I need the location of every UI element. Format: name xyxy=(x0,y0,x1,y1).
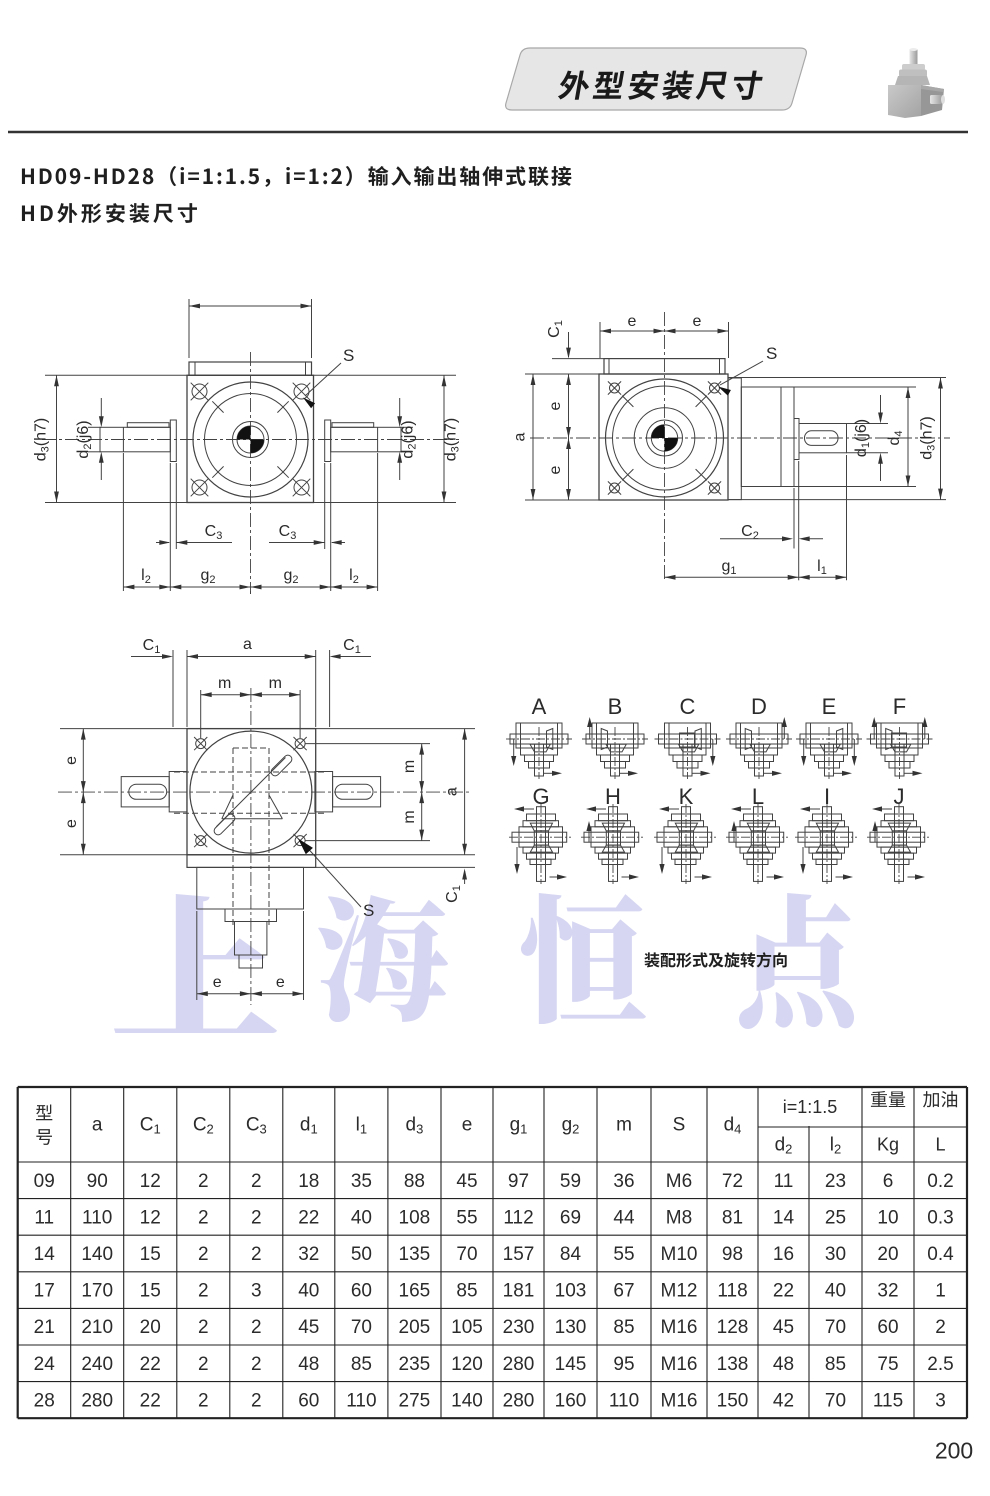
svg-text:2: 2 xyxy=(251,1207,262,1228)
svg-text:157: 157 xyxy=(503,1244,535,1265)
svg-text:85: 85 xyxy=(456,1281,477,1302)
svg-text:72: 72 xyxy=(722,1171,743,1192)
svg-text:a: a xyxy=(243,636,252,653)
svg-text:24: 24 xyxy=(34,1354,56,1375)
svg-text:L: L xyxy=(935,1135,945,1155)
svg-text:a: a xyxy=(512,432,529,441)
svg-text:150: 150 xyxy=(717,1390,749,1411)
svg-text:45: 45 xyxy=(773,1317,794,1338)
svg-text:18: 18 xyxy=(298,1171,319,1192)
svg-text:140: 140 xyxy=(451,1390,483,1411)
svg-text:28: 28 xyxy=(34,1390,55,1411)
svg-text:170: 170 xyxy=(81,1281,113,1302)
svg-text:m: m xyxy=(401,760,418,773)
svg-text:85: 85 xyxy=(351,1354,372,1375)
svg-text:3: 3 xyxy=(251,1281,262,1302)
svg-text:M12: M12 xyxy=(661,1281,698,1302)
svg-text:45: 45 xyxy=(298,1317,319,1338)
svg-text:12: 12 xyxy=(140,1171,161,1192)
svg-text:200: 200 xyxy=(935,1438,973,1464)
svg-text:0.2: 0.2 xyxy=(927,1171,953,1192)
svg-text:280: 280 xyxy=(503,1354,535,1375)
svg-text:20: 20 xyxy=(140,1317,161,1338)
svg-text:m: m xyxy=(269,675,282,692)
svg-text:e: e xyxy=(213,974,222,991)
svg-text:48: 48 xyxy=(773,1354,794,1375)
svg-text:2: 2 xyxy=(198,1354,209,1375)
svg-text:d3(h7): d3(h7) xyxy=(919,416,938,459)
svg-text:S: S xyxy=(363,901,374,920)
svg-text:36: 36 xyxy=(613,1171,634,1192)
svg-text:11: 11 xyxy=(34,1207,54,1228)
svg-text:60: 60 xyxy=(877,1317,898,1338)
svg-text:22: 22 xyxy=(140,1390,161,1411)
svg-text:135: 135 xyxy=(399,1244,431,1265)
svg-text:70: 70 xyxy=(825,1317,846,1338)
svg-text:130: 130 xyxy=(555,1317,587,1338)
svg-text:2: 2 xyxy=(935,1317,946,1338)
svg-text:14: 14 xyxy=(34,1244,56,1265)
svg-text:32: 32 xyxy=(298,1244,319,1265)
svg-text:110: 110 xyxy=(609,1390,639,1411)
svg-text:i=1:1.5: i=1:1.5 xyxy=(783,1097,838,1117)
svg-text:67: 67 xyxy=(613,1281,634,1302)
svg-text:09: 09 xyxy=(34,1171,55,1192)
svg-text:160: 160 xyxy=(555,1390,587,1411)
svg-text:e: e xyxy=(276,974,285,991)
svg-text:48: 48 xyxy=(298,1354,319,1375)
svg-text:d2(j6): d2(j6) xyxy=(400,420,419,458)
svg-text:95: 95 xyxy=(613,1354,634,1375)
svg-text:S: S xyxy=(766,344,777,363)
svg-text:A: A xyxy=(532,694,547,719)
svg-text:50: 50 xyxy=(351,1244,372,1265)
svg-text:60: 60 xyxy=(298,1390,319,1411)
svg-text:B: B xyxy=(608,694,623,719)
svg-text:128: 128 xyxy=(717,1317,749,1338)
svg-text:M10: M10 xyxy=(661,1244,698,1265)
svg-text:2: 2 xyxy=(251,1171,262,1192)
svg-text:32: 32 xyxy=(877,1281,898,1302)
svg-text:12: 12 xyxy=(140,1207,161,1228)
svg-text:25: 25 xyxy=(825,1207,846,1228)
svg-text:165: 165 xyxy=(399,1281,431,1302)
svg-text:69: 69 xyxy=(560,1207,581,1228)
svg-text:81: 81 xyxy=(722,1207,743,1228)
svg-text:m: m xyxy=(401,810,418,823)
svg-text:6: 6 xyxy=(883,1171,894,1192)
svg-text:181: 181 xyxy=(503,1281,535,1302)
svg-text:e: e xyxy=(693,313,702,330)
svg-text:110: 110 xyxy=(82,1207,112,1228)
svg-text:e: e xyxy=(547,401,564,410)
svg-text:108: 108 xyxy=(399,1207,431,1228)
svg-text:e: e xyxy=(628,313,637,330)
svg-text:30: 30 xyxy=(825,1244,846,1265)
svg-text:0.3: 0.3 xyxy=(927,1207,953,1228)
svg-text:2: 2 xyxy=(198,1171,209,1192)
svg-text:m: m xyxy=(218,675,231,692)
svg-text:90: 90 xyxy=(87,1171,108,1192)
svg-text:0.4: 0.4 xyxy=(927,1244,954,1265)
svg-text:60: 60 xyxy=(351,1281,372,1302)
svg-text:2: 2 xyxy=(251,1354,262,1375)
svg-text:110: 110 xyxy=(346,1390,376,1411)
svg-text:55: 55 xyxy=(456,1207,477,1228)
svg-text:145: 145 xyxy=(555,1354,587,1375)
svg-text:98: 98 xyxy=(722,1244,743,1265)
svg-text:40: 40 xyxy=(825,1281,846,1302)
svg-text:2: 2 xyxy=(198,1390,209,1411)
svg-text:15: 15 xyxy=(140,1281,161,1302)
svg-text:16: 16 xyxy=(773,1244,794,1265)
svg-text:21: 21 xyxy=(34,1317,55,1338)
svg-text:2: 2 xyxy=(198,1317,209,1338)
svg-text:a: a xyxy=(444,787,461,796)
svg-text:d3(h7): d3(h7) xyxy=(33,418,52,461)
svg-text:280: 280 xyxy=(503,1390,535,1411)
svg-text:59: 59 xyxy=(560,1171,581,1192)
svg-text:112: 112 xyxy=(503,1207,533,1228)
svg-text:138: 138 xyxy=(717,1354,749,1375)
svg-text:205: 205 xyxy=(399,1317,431,1338)
svg-text:210: 210 xyxy=(81,1317,113,1338)
svg-text:84: 84 xyxy=(560,1244,582,1265)
svg-text:F: F xyxy=(893,694,906,719)
svg-text:2: 2 xyxy=(251,1317,262,1338)
svg-text:40: 40 xyxy=(298,1281,319,1302)
svg-text:230: 230 xyxy=(503,1317,535,1338)
svg-text:115: 115 xyxy=(873,1390,903,1411)
svg-text:70: 70 xyxy=(456,1244,477,1265)
svg-text:88: 88 xyxy=(404,1171,425,1192)
svg-text:44: 44 xyxy=(613,1207,635,1228)
svg-text:280: 280 xyxy=(81,1390,113,1411)
svg-text:105: 105 xyxy=(451,1317,483,1338)
svg-text:e: e xyxy=(63,819,80,828)
svg-text:1: 1 xyxy=(935,1281,946,1302)
svg-text:S: S xyxy=(343,346,354,365)
svg-text:75: 75 xyxy=(877,1354,898,1375)
svg-text:14: 14 xyxy=(773,1207,795,1228)
svg-text:23: 23 xyxy=(825,1171,846,1192)
svg-text:40: 40 xyxy=(351,1207,372,1228)
svg-text:10: 10 xyxy=(877,1207,898,1228)
svg-text:D: D xyxy=(751,694,767,719)
svg-text:2: 2 xyxy=(198,1281,209,1302)
svg-text:E: E xyxy=(822,694,837,719)
svg-text:M16: M16 xyxy=(661,1390,698,1411)
svg-text:a: a xyxy=(92,1115,103,1136)
svg-text:e: e xyxy=(462,1115,473,1136)
svg-text:d2(j6): d2(j6) xyxy=(75,420,94,458)
svg-text:M16: M16 xyxy=(661,1354,698,1375)
svg-text:55: 55 xyxy=(613,1244,634,1265)
svg-text:20: 20 xyxy=(877,1244,898,1265)
svg-text:d3(h7): d3(h7) xyxy=(443,418,462,461)
svg-text:42: 42 xyxy=(773,1390,794,1411)
svg-text:70: 70 xyxy=(351,1317,372,1338)
svg-text:2: 2 xyxy=(251,1390,262,1411)
svg-text:m: m xyxy=(616,1115,632,1136)
svg-text:S: S xyxy=(673,1115,686,1136)
svg-text:M6: M6 xyxy=(666,1171,692,1192)
svg-text:e: e xyxy=(63,756,80,765)
svg-text:275: 275 xyxy=(399,1390,431,1411)
svg-text:22: 22 xyxy=(298,1207,319,1228)
svg-text:2: 2 xyxy=(198,1244,209,1265)
svg-text:45: 45 xyxy=(456,1171,477,1192)
svg-text:97: 97 xyxy=(508,1171,529,1192)
svg-text:2: 2 xyxy=(198,1207,209,1228)
svg-text:22: 22 xyxy=(140,1354,161,1375)
svg-text:70: 70 xyxy=(825,1390,846,1411)
svg-text:2.5: 2.5 xyxy=(927,1354,953,1375)
svg-text:140: 140 xyxy=(81,1244,113,1265)
svg-text:85: 85 xyxy=(613,1317,634,1338)
svg-text:2: 2 xyxy=(251,1244,262,1265)
svg-text:35: 35 xyxy=(351,1171,372,1192)
svg-text:17: 17 xyxy=(34,1281,55,1302)
svg-text:118: 118 xyxy=(717,1281,747,1302)
svg-text:3: 3 xyxy=(935,1390,946,1411)
svg-text:15: 15 xyxy=(140,1244,161,1265)
svg-text:240: 240 xyxy=(81,1354,113,1375)
svg-text:11: 11 xyxy=(774,1171,794,1192)
svg-text:C: C xyxy=(680,694,696,719)
svg-text:d1(j6): d1(j6) xyxy=(853,419,872,457)
svg-text:103: 103 xyxy=(555,1281,587,1302)
svg-text:Kg: Kg xyxy=(877,1135,899,1155)
svg-text:85: 85 xyxy=(825,1354,846,1375)
svg-text:120: 120 xyxy=(451,1354,483,1375)
svg-text:M16: M16 xyxy=(661,1317,698,1338)
svg-text:235: 235 xyxy=(399,1354,431,1375)
svg-text:e: e xyxy=(547,465,564,474)
svg-text:22: 22 xyxy=(773,1281,794,1302)
svg-text:M8: M8 xyxy=(666,1207,692,1228)
